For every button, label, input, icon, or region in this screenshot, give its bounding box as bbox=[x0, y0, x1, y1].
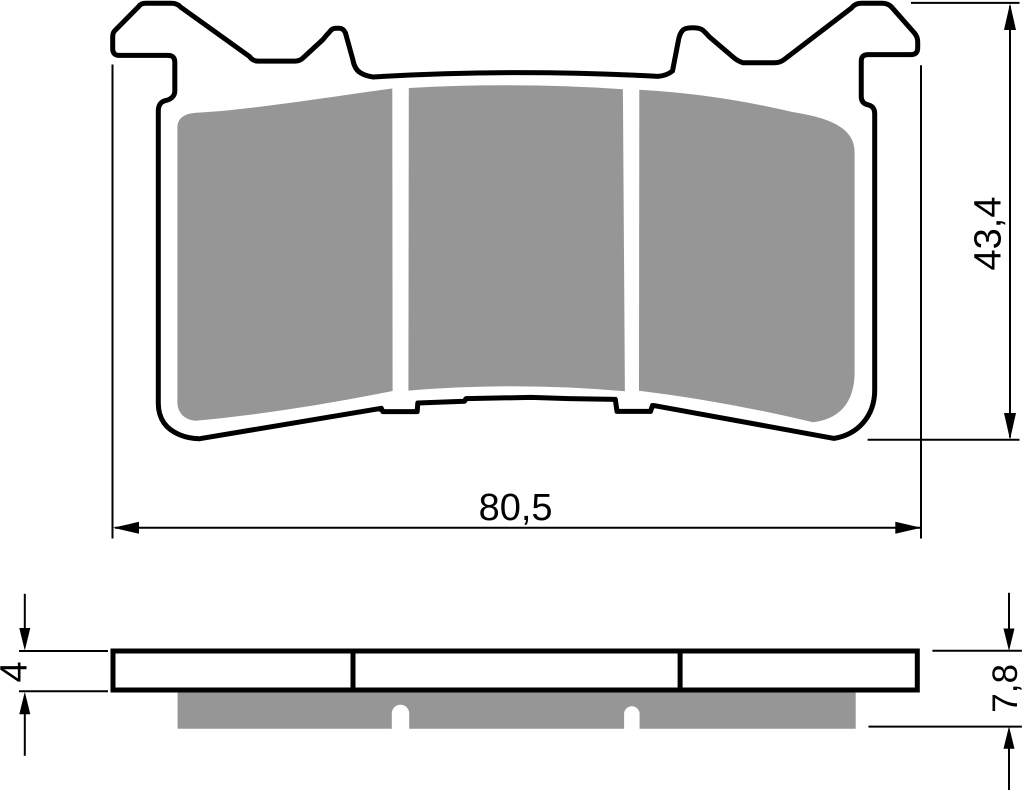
svg-text:7,8: 7,8 bbox=[986, 664, 1024, 713]
svg-text:43,4: 43,4 bbox=[968, 197, 1010, 271]
svg-text:80,5: 80,5 bbox=[479, 487, 553, 529]
svg-text:4: 4 bbox=[0, 661, 35, 682]
